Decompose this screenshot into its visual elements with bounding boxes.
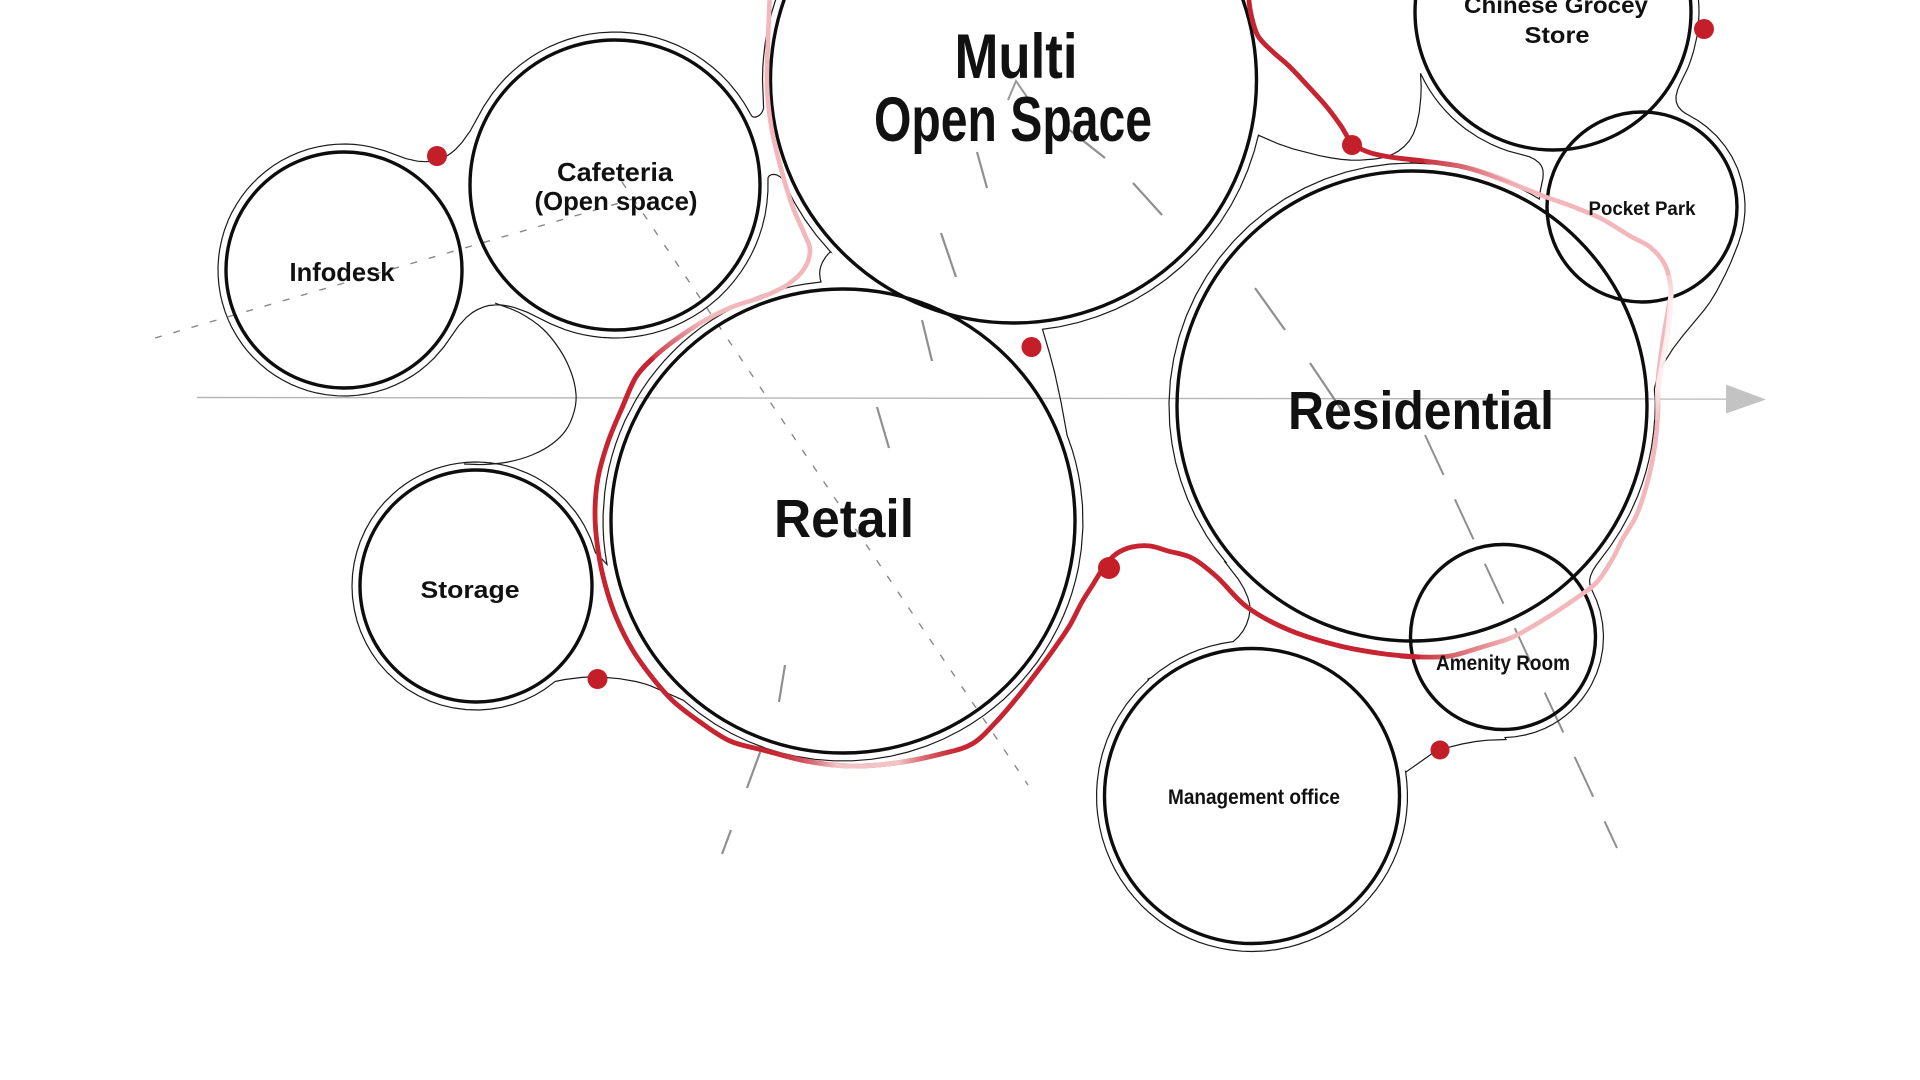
svg-text:Residential: Residential [1288, 381, 1554, 441]
svg-text:Pocket Park: Pocket Park [1589, 198, 1696, 220]
svg-text:Retail: Retail [774, 489, 914, 549]
svg-text:Multi: Multi [955, 22, 1078, 92]
svg-text:Open Space: Open Space [874, 85, 1152, 155]
svg-text:Amenity Room: Amenity Room [1436, 652, 1570, 675]
svg-text:Storage: Storage [421, 577, 520, 604]
svg-text:Infodesk: Infodesk [290, 257, 396, 287]
svg-text:Store: Store [1525, 22, 1590, 48]
svg-text:Chinese Grocey: Chinese Grocey [1464, 0, 1648, 18]
svg-text:Management office: Management office [1168, 786, 1340, 809]
svg-text:Cafeteria: Cafeteria [557, 157, 674, 187]
svg-text:(Open space): (Open space) [535, 186, 698, 216]
